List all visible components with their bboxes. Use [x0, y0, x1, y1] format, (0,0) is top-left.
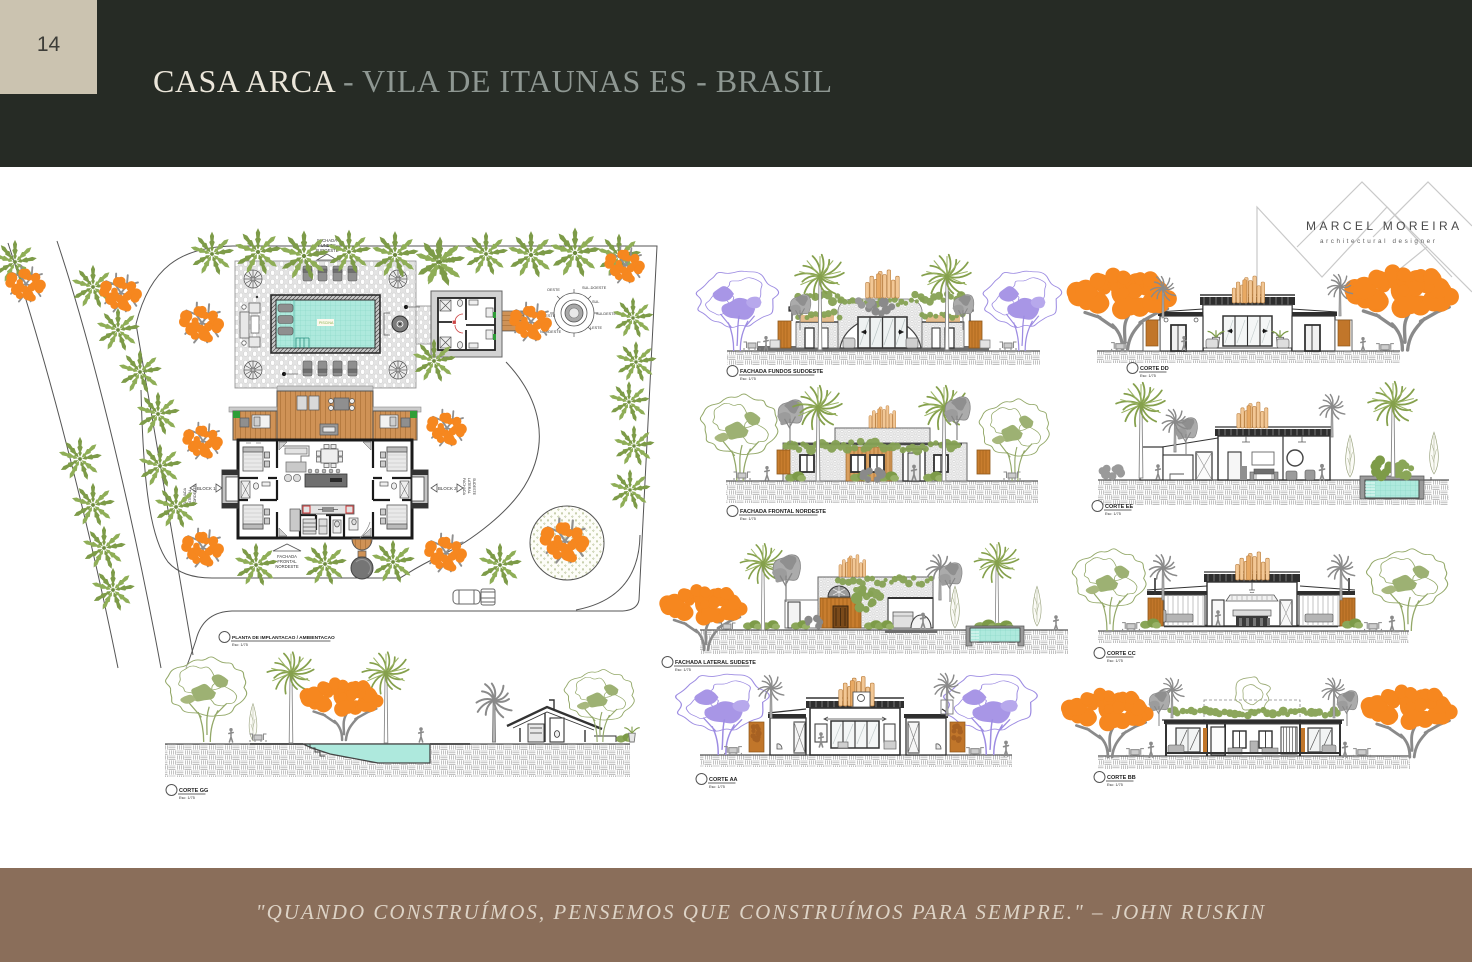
svg-text:BLOCK 1: BLOCK 1: [197, 486, 216, 491]
svg-text:Esc: 1/75: Esc: 1/75: [675, 668, 691, 672]
svg-text:BLOCK 2: BLOCK 2: [438, 486, 457, 491]
svg-text:FACHADA FUNDOS SUDOESTE: FACHADA FUNDOS SUDOESTE: [740, 369, 824, 375]
svg-text:FACHADA FRONTAL NORDESTE: FACHADA FRONTAL NORDESTE: [740, 509, 826, 515]
svg-text:PISCINA: PISCINA: [319, 321, 334, 325]
svg-text:SUDESTE: SUDESTE: [472, 478, 476, 496]
svg-text:SUL: SUL: [592, 300, 599, 304]
svg-text:NORDESTE: NORDESTE: [275, 564, 298, 569]
svg-text:CORTE EE: CORTE EE: [1105, 504, 1133, 510]
svg-text:OESTE: OESTE: [547, 288, 560, 292]
svg-text:CORTE CC: CORTE CC: [1107, 651, 1136, 657]
svg-text:CORTE BB: CORTE BB: [1107, 775, 1136, 781]
svg-text:Esc: 1/75: Esc: 1/75: [1107, 659, 1123, 663]
svg-text:FACHADA LATERAL SUDESTE: FACHADA LATERAL SUDESTE: [675, 660, 756, 666]
svg-text:Esc: 1/75: Esc: 1/75: [740, 377, 756, 381]
svg-text:CORTE DD: CORTE DD: [1140, 366, 1169, 372]
svg-text:SUL-DOESTE: SUL-DOESTE: [582, 286, 607, 290]
svg-text:Esc: 1/75: Esc: 1/75: [740, 517, 756, 521]
svg-text:PLANTA DE IMPLANTACAO / AMBIEN: PLANTA DE IMPLANTACAO / AMBIENTACAO: [232, 635, 335, 641]
svg-text:Esc: 1/75: Esc: 1/75: [709, 785, 725, 789]
svg-text:FACHADA: FACHADA: [462, 478, 466, 496]
svg-text:Esc: 1/75: Esc: 1/75: [1107, 783, 1123, 787]
svg-text:CORTE AA: CORTE AA: [709, 777, 738, 783]
svg-text:CORTE GG: CORTE GG: [179, 788, 208, 794]
svg-text:SULDESTE: SULDESTE: [596, 312, 617, 316]
svg-text:Esc: 1/75: Esc: 1/75: [1105, 512, 1121, 516]
svg-text:Esc: 1/75: Esc: 1/75: [1140, 374, 1156, 378]
svg-text:Esc: 1/75: Esc: 1/75: [179, 796, 195, 800]
svg-text:LATERAL: LATERAL: [467, 478, 471, 494]
svg-text:Esc: 1/75: Esc: 1/75: [232, 643, 248, 647]
svg-text:LESTE: LESTE: [590, 326, 602, 330]
